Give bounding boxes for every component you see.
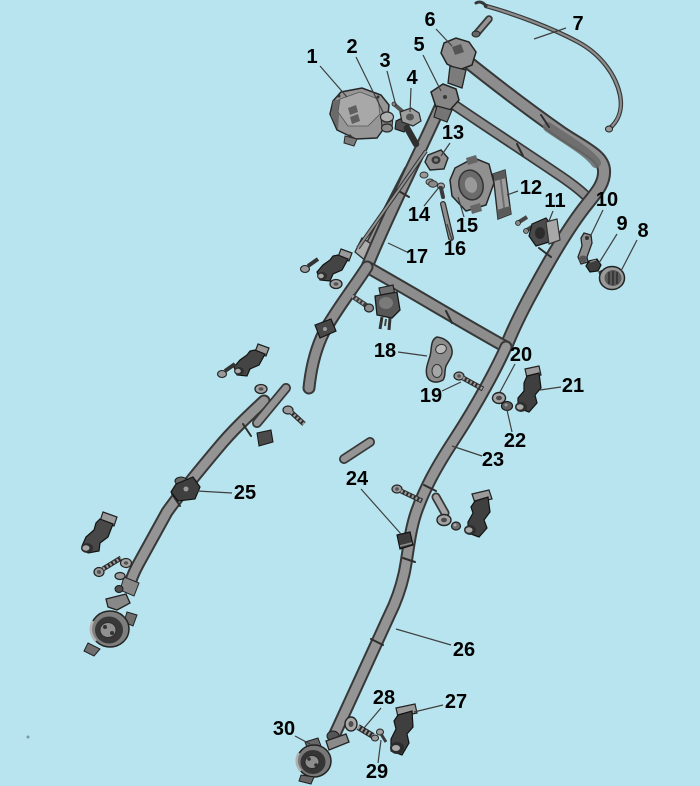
callout-label-10: 10 (596, 189, 618, 211)
callout-label-20: 20 (510, 344, 532, 366)
callout-label-14: 14 (408, 204, 431, 226)
part-2-spool (381, 112, 394, 132)
callout-label-2: 2 (346, 36, 357, 58)
cable-end-fitting (606, 126, 613, 132)
callout-label-27: 27 (445, 691, 467, 713)
callout-label-29: 29 (366, 761, 388, 783)
callout-label-26: 26 (453, 639, 475, 661)
callout-label-8: 8 (637, 220, 648, 242)
callout-label-6: 6 (424, 9, 435, 31)
callout-label-7: 7 (572, 13, 583, 35)
callout-label-24: 24 (346, 468, 369, 490)
callout-label-9: 9 (616, 213, 627, 235)
callout-label-11: 11 (544, 190, 565, 212)
callout-label-25: 25 (234, 482, 256, 504)
callout-label-30: 30 (273, 718, 295, 740)
diagram-canvas: 1234567891011121314151617181920212223242… (0, 0, 700, 786)
callout-label-28: 28 (373, 687, 395, 709)
callout-label-3: 3 (379, 50, 390, 72)
callout-label-17: 17 (406, 246, 428, 268)
callout-label-21: 21 (562, 375, 584, 397)
callout-label-1: 1 (306, 46, 317, 68)
part-22-nut (502, 402, 513, 411)
callout-label-23: 23 (482, 449, 504, 471)
callout-label-16: 16 (444, 238, 466, 260)
callout-label-4: 4 (406, 67, 418, 89)
exploded-parts-diagram: 1234567891011121314151617181920212223242… (0, 0, 700, 786)
part-25-clamp (171, 477, 200, 501)
callout-label-12: 12 (520, 177, 542, 199)
callout-label-5: 5 (413, 34, 424, 56)
callout-label-18: 18 (374, 340, 396, 362)
callout-label-13: 13 (442, 122, 464, 144)
callout-label-19: 19 (420, 385, 442, 407)
callout-label-22: 22 (504, 430, 526, 452)
callout-label-15: 15 (456, 215, 478, 237)
part-8-knob (599, 267, 625, 290)
speck-mark (27, 736, 30, 739)
